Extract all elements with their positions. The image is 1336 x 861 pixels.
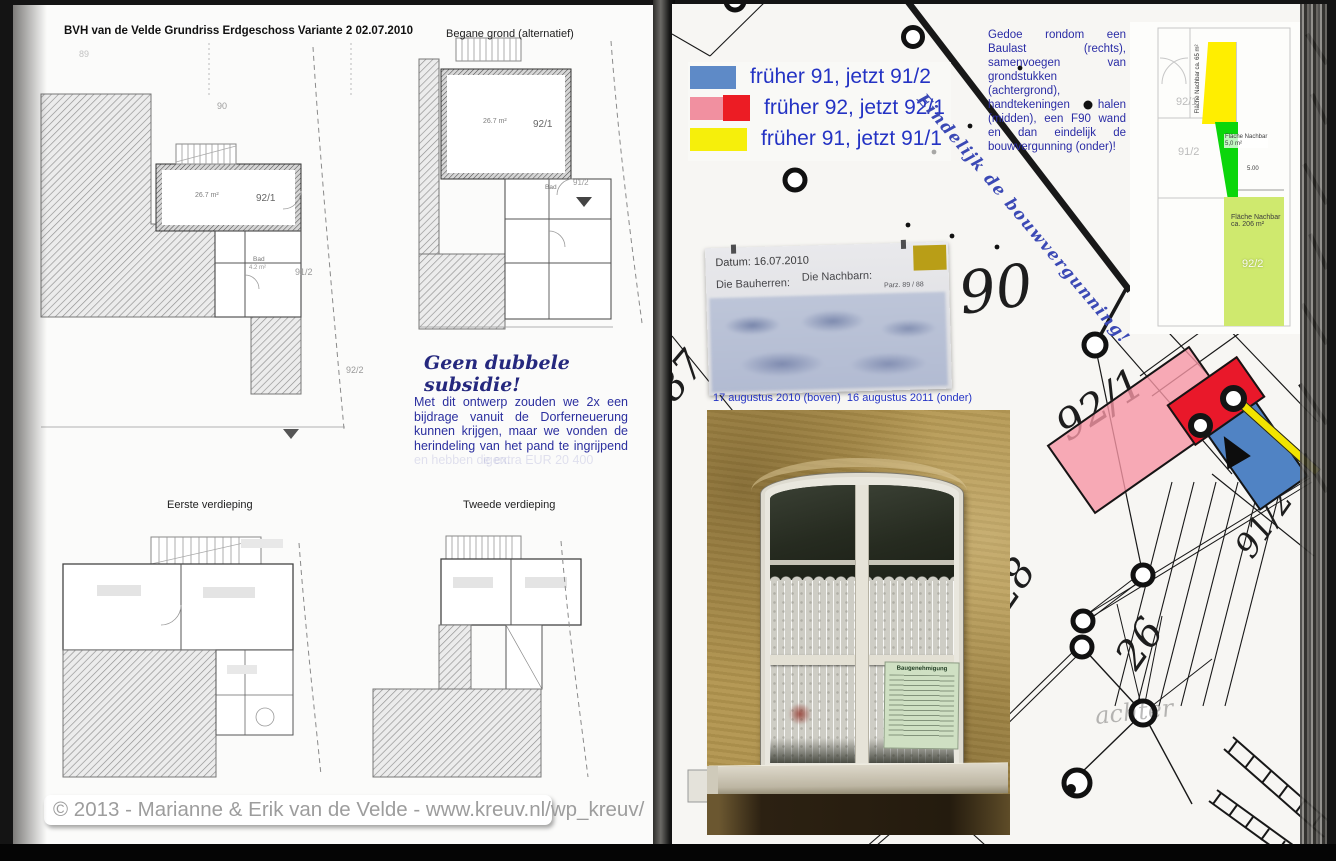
flaeche-nachbar-label: Fläche Nachbar: [1231, 214, 1280, 221]
bad-room-label: Bad: [253, 256, 265, 263]
siteplan-92-2: 92/2: [1242, 258, 1263, 270]
legend: früher 91, jetzt 91/2 früher 92, jetzt 9…: [688, 62, 951, 161]
window-sill: [709, 762, 1008, 796]
photo-caption: 17 augustus 2010 (boven) 16 augustus 201…: [713, 392, 972, 404]
caption-tweede-verdieping: Tweede verdieping: [463, 499, 555, 511]
window-pane-left: [770, 485, 862, 763]
lace-curtain: [770, 580, 862, 763]
permit-document: Datum: 16.07.2010 Die Bauherren: Die Nac…: [705, 242, 952, 396]
document-clip-mark: [901, 240, 906, 249]
legend-row: früher 91, jetzt 91/2: [690, 64, 945, 90]
caption-begane-grond: Begane grond (alternatief): [446, 28, 574, 40]
document-parzelle-label: Parz. 89 / 88: [884, 281, 924, 289]
legend-swatch-yellow: [690, 128, 747, 151]
bad-room-label: Bad: [545, 184, 557, 191]
room-area-label: 26.7 m²: [195, 192, 219, 199]
parcel-90-label: 90: [217, 101, 227, 111]
floor-plan-first: [63, 537, 321, 777]
legend-row: früher 91, jetzt 91/1: [690, 126, 945, 152]
copyright-text: © 2013 - Marianne & Erik van de Velde - …: [44, 798, 644, 822]
copyright-badge: © 2013 - Marianne & Erik van de Velde - …: [44, 795, 552, 825]
flaeche-area: 5,0 m²: [1225, 141, 1267, 148]
floor-plan-second: [373, 536, 588, 777]
subsidy-heading: Geen dubbele subsidie!: [424, 352, 658, 396]
legend-swatch-blue: [690, 66, 736, 89]
page-curl-edge: [1300, 4, 1327, 844]
legend-swatch-pink: [690, 97, 727, 120]
subsidy-paragraph: Met dit ontwerp zouden we 2x een bijdrag…: [414, 395, 628, 468]
parcel-91-2-label: 91/2: [295, 267, 313, 277]
document-nachbarn-label: Die Nachbarn:: [802, 270, 873, 284]
map-number-90: 90: [954, 250, 1037, 328]
document-bauherren-label: Die Bauherren:: [716, 277, 790, 291]
curtain-scallop-edge: [770, 573, 862, 581]
curtain-scallop-edge: [862, 573, 954, 581]
document-clip-mark: [731, 245, 736, 254]
subsidy-text: Met dit ontwerp zouden we 2x een bijdrag…: [414, 395, 628, 453]
curtain-hem-shadow: [770, 738, 862, 763]
map-number-26: 26: [1106, 610, 1173, 679]
muntin-bar: [862, 560, 954, 565]
bad-area-label: 4.2 m²: [249, 265, 266, 271]
glass-reflection: [862, 485, 954, 580]
legend-row: früher 92, jetzt 92/1: [690, 95, 945, 121]
survey-marker: [1220, 385, 1247, 412]
legend-label: früher 91, jetzt 91/2: [750, 65, 931, 89]
siteplan-91-2: 91/2: [1178, 146, 1199, 158]
right-page: 90 87 92/1 28 26 91/2 achter früher 91, …: [672, 4, 1327, 844]
center-mullion: [855, 485, 869, 763]
flaeche-nachbar-label: Fläche Nachbar: [1225, 134, 1267, 141]
flaeche-area: ca. 65 m²: [1195, 44, 1201, 69]
document-date: Datum: 16.07.2010: [715, 255, 809, 270]
window-photo: Baugenehmigung: [707, 410, 1010, 835]
notice-text-lines: [889, 675, 955, 738]
floor-plan-alt: 26.7 m² 92/1 Bad 91/2: [419, 38, 642, 329]
legend-label: früher 91, jetzt 91/1: [761, 127, 942, 151]
siteplan-lime-label: Fläche Nachbar ca. 206 m²: [1230, 214, 1281, 228]
siteplan-92-1: 92/1: [1176, 96, 1197, 108]
flaeche-area: ca. 206 m²: [1231, 221, 1280, 228]
interior-object: [787, 704, 813, 724]
floor-plan-main: 26.7 m² 92/1 Bad 4.2 m² 91/2 92/2 90 89: [41, 43, 364, 439]
legend-swatch-red: [723, 95, 750, 121]
parcel-92-1-label: 92/1: [256, 193, 276, 204]
room-area-label: 26.7 m²: [483, 118, 507, 125]
siteplan-dimension: 5.00: [1246, 166, 1260, 173]
parcel-89-label: 89: [79, 49, 89, 59]
siteplan-green-label: Fläche Nachbar 5,0 m²: [1224, 134, 1268, 148]
glass-reflection: [770, 485, 862, 580]
notice-title: Baugenehmigung: [889, 666, 954, 673]
shadow-under-sill: [707, 794, 1010, 835]
parcel-92-1-label: 92/1: [533, 119, 553, 130]
document-signatures-blurred: [709, 292, 948, 393]
survey-marker: [1188, 413, 1213, 438]
permit-notice-on-window: Baugenehmigung: [883, 661, 959, 749]
annotation-note: Gedoe rondom een Baulast (rechts), samen…: [988, 28, 1126, 154]
caption-eerste-verdieping: Eerste verdieping: [167, 499, 253, 511]
book-spread: BVH van de Velde Grundriss Erdgeschoss V…: [0, 0, 1336, 861]
left-page: BVH van de Velde Grundriss Erdgeschoss V…: [13, 5, 658, 844]
parcel-92-2-label: 92/2: [346, 365, 364, 375]
parcel-91-2-label: 91/2: [573, 178, 589, 187]
frame-bottom-bar: [0, 844, 1336, 861]
muntin-bar: [770, 560, 862, 565]
subsidy-text-faded-2: igen.: [483, 453, 510, 467]
mini-site-plan: Fläche Nachbar ca. 65 m² 92/1 91/2 Fläch…: [1130, 22, 1302, 334]
document-olive-mark: [913, 245, 947, 271]
map-faint-text: achter: [1094, 694, 1177, 730]
